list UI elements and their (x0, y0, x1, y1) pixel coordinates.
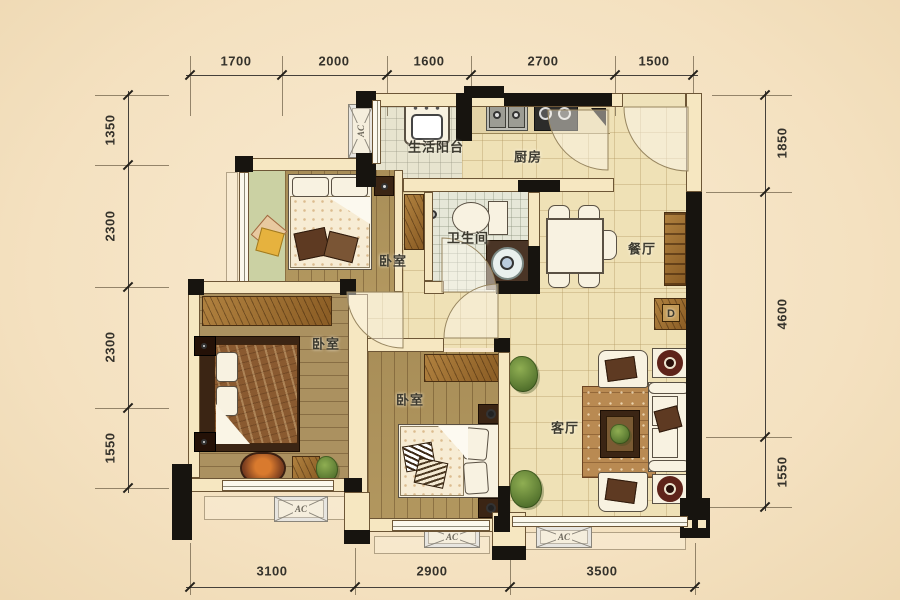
dimension-line-bottom (186, 587, 699, 588)
column (498, 486, 510, 532)
duvet-fold (328, 197, 370, 224)
sink-drain (493, 111, 501, 119)
extension-line (95, 488, 169, 489)
dim-label: 2300 (103, 211, 118, 242)
duvet-fold (216, 404, 250, 444)
dim-label: 1600 (414, 54, 445, 69)
window (392, 520, 490, 531)
column (344, 478, 362, 492)
ac-unit: AC (348, 104, 374, 158)
wardrobe (202, 296, 332, 326)
extension-line (95, 95, 169, 96)
throw-pillow (605, 356, 638, 382)
extension-line (190, 56, 191, 116)
sofa-seat (652, 428, 678, 458)
label-living: 客厅 (551, 422, 579, 435)
window (372, 100, 381, 164)
ac-unit: AC (274, 496, 328, 522)
toilet-bowl (452, 202, 490, 234)
dimension-line-right (765, 91, 766, 511)
window-sill (226, 172, 238, 282)
extension-line (615, 56, 616, 116)
washer-drum (411, 114, 443, 140)
pillow (292, 177, 329, 197)
ac-unit: AC (536, 526, 592, 548)
duvet-fold (438, 426, 468, 460)
basin-drain (500, 256, 514, 270)
wall-segment (403, 178, 614, 192)
plant (510, 470, 542, 508)
post-knob (201, 343, 207, 349)
ac-label: AC (356, 123, 366, 139)
window (222, 480, 334, 491)
extension-line (510, 560, 511, 595)
column (188, 279, 204, 295)
label-kitchen: 厨房 (514, 151, 542, 164)
closet (404, 194, 424, 250)
column (494, 338, 510, 352)
extension-line (95, 165, 169, 166)
shoe-cabinet (664, 212, 686, 286)
dim-label: 2000 (319, 54, 350, 69)
extension-line (706, 192, 792, 193)
plant (508, 356, 538, 392)
column-cap (344, 530, 370, 544)
sofa-armrest (648, 382, 690, 394)
dim-label: 1700 (221, 54, 252, 69)
dim-label: 1850 (775, 128, 790, 159)
window (239, 172, 249, 282)
side-table-center (666, 359, 674, 367)
ac-label: AC (444, 532, 460, 542)
label-bedroom-top: 卧室 (379, 255, 407, 268)
dining-table (546, 218, 604, 274)
dim-label: 1550 (775, 457, 790, 488)
wall-segment (394, 170, 403, 292)
stove-burner (539, 107, 552, 120)
extension-line (712, 95, 792, 96)
dim-label: 1350 (103, 115, 118, 146)
distribution-box-label: D (662, 304, 680, 322)
sofa-armrest (648, 460, 690, 472)
dining-chair (578, 272, 600, 288)
label-bathroom: 卫生间 (447, 232, 489, 245)
wardrobe (424, 354, 500, 382)
column (235, 156, 253, 172)
dining-chair (548, 272, 570, 288)
throw-pillow (605, 478, 638, 504)
column (504, 93, 592, 106)
wall-segment (235, 158, 376, 171)
extension-line (95, 287, 169, 288)
label-bedroom-bottom: 卧室 (396, 394, 424, 407)
extension-line (706, 507, 792, 508)
stove-burner (558, 107, 571, 120)
column-notch (698, 520, 706, 528)
pillow (463, 461, 489, 495)
table-plant (610, 424, 630, 444)
floor-plan: D (0, 0, 900, 600)
column-cap (492, 546, 526, 560)
side-table-center (666, 485, 674, 493)
lamp (486, 409, 496, 419)
column (528, 246, 540, 292)
dim-label: 1550 (103, 433, 118, 464)
dimension-line-left (128, 91, 129, 493)
dim-label: 2700 (528, 54, 559, 69)
dim-label: 3500 (587, 564, 618, 579)
column (172, 464, 192, 540)
pillow (216, 352, 238, 382)
dim-label: 4600 (775, 299, 790, 330)
wall-pillar (344, 492, 370, 534)
entry-door-opening (622, 94, 686, 107)
dim-label: 3100 (257, 564, 288, 579)
wall-segment (424, 192, 433, 281)
wall-segment (424, 281, 444, 294)
label-bedroom-master: 卧室 (312, 338, 340, 351)
column (590, 93, 612, 106)
ac-label: AC (293, 504, 309, 514)
extension-line (95, 408, 169, 409)
column (456, 93, 472, 141)
window (512, 516, 688, 527)
column (340, 279, 356, 295)
label-dining: 餐厅 (628, 243, 656, 256)
label-balcony: 生活阳台 (408, 141, 464, 154)
toilet-tank (488, 201, 508, 235)
wall-segment (188, 281, 348, 294)
extension-line (387, 56, 388, 116)
wall-right-black (686, 192, 702, 532)
dim-label: 2300 (103, 332, 118, 363)
wall-segment (686, 93, 702, 192)
extension-line (282, 56, 283, 116)
dim-label: 1500 (639, 54, 670, 69)
extension-line (706, 437, 792, 438)
ac-label: AC (556, 532, 572, 542)
dim-label: 2900 (417, 564, 448, 579)
lamp (381, 183, 388, 190)
kitchen-door-leaf (591, 108, 606, 126)
wall-segment (356, 338, 444, 352)
column (518, 180, 560, 192)
post-knob (201, 439, 207, 445)
sink-drain (512, 111, 520, 119)
dining-armchair (602, 230, 617, 260)
dimension-line-top (186, 75, 698, 76)
